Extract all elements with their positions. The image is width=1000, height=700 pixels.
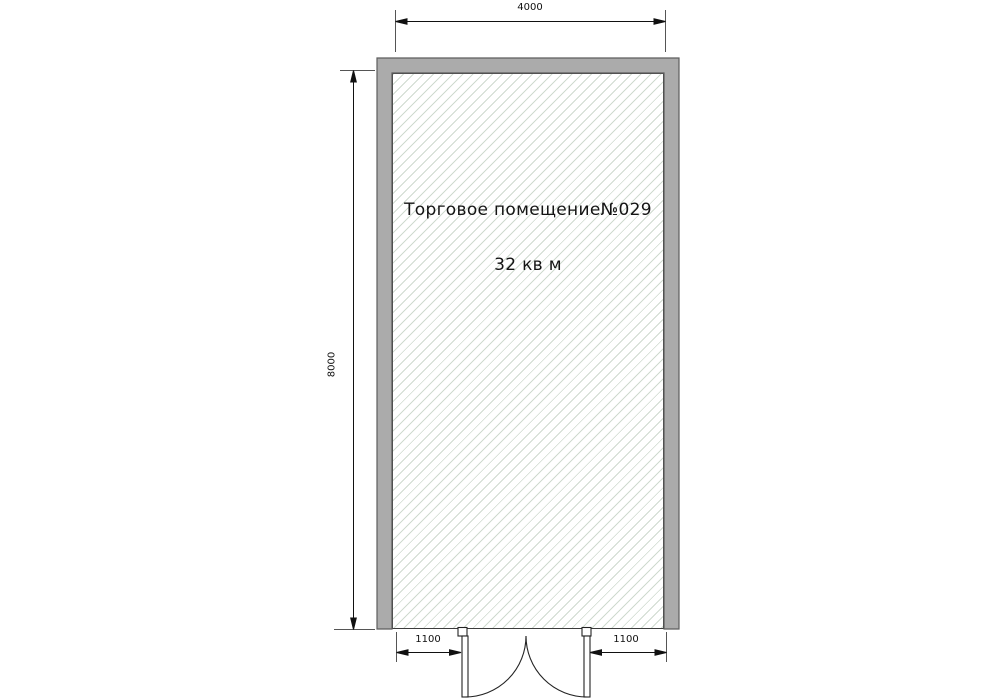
dimension-top [396, 10, 666, 52]
door-jamb-right [582, 628, 591, 637]
dimension-label-width: 4000 [504, 2, 556, 13]
door-jamb-left [458, 628, 467, 637]
wall-outline [377, 58, 679, 629]
dimension-label-height: 8000 [327, 347, 340, 383]
door-swing-arc-right [526, 636, 587, 697]
room-area-label: 32 кв м [392, 255, 664, 275]
arrowhead-up-icon [351, 71, 357, 83]
arrowhead-right-icon [450, 650, 462, 656]
floor-plan-canvas: Торговое помещение№029 32 кв м 4000 8000… [0, 0, 1000, 700]
door-swing-arc-left [465, 636, 526, 697]
arrowhead-right-icon [654, 19, 666, 25]
floor-plan-drawing [0, 0, 1000, 700]
dimension-label-door-left: 1100 [402, 634, 454, 645]
door-leaf-right [584, 636, 590, 697]
double-door [458, 628, 591, 698]
arrowhead-left-icon [396, 19, 408, 25]
arrowhead-down-icon [351, 618, 357, 630]
dimension-left [334, 71, 375, 630]
room-name-label: Торговое помещение№029 [392, 200, 664, 220]
arrowhead-right-icon [655, 650, 667, 656]
arrowhead-left-icon [590, 650, 602, 656]
dimension-label-door-right: 1100 [600, 634, 652, 645]
arrowhead-left-icon [397, 650, 409, 656]
door-leaf-left [462, 636, 468, 697]
